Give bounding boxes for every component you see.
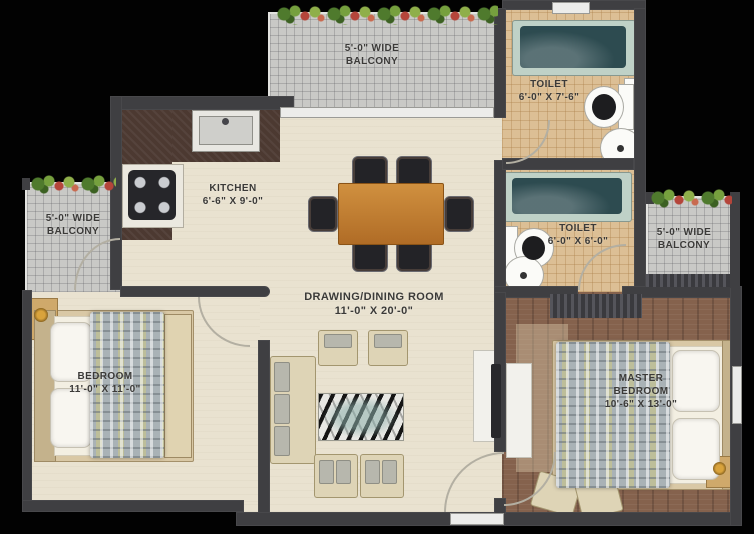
balcony-sliding-door — [280, 107, 494, 118]
tv-unit — [506, 363, 532, 458]
sink-drain — [617, 145, 624, 152]
bedroom-label: BEDROOM11'-0" X 11'-0" — [30, 370, 180, 396]
bathtub — [512, 178, 622, 214]
loveseat-cushion — [336, 460, 351, 484]
toilet-top-label: TOILET6'-0" X 7'-6" — [499, 78, 599, 104]
wall — [22, 500, 244, 512]
kitchen-label: KITCHEN6'-6" X 9'-0" — [163, 182, 303, 208]
wall — [22, 290, 32, 512]
plants-icon — [276, 5, 498, 25]
entry-door-gap — [450, 513, 504, 525]
faucet-icon — [222, 118, 229, 125]
toilet-top-window — [552, 2, 590, 14]
loveseat-cushion — [319, 460, 334, 484]
lamp-icon — [713, 462, 726, 475]
balcony-right-label: 5'-0" WIDEBALCONY — [638, 226, 730, 252]
sink-drain — [520, 272, 527, 279]
plants-icon — [650, 189, 732, 208]
dining-chair — [444, 196, 474, 232]
master-window — [732, 366, 742, 424]
sofa-cushion — [274, 362, 290, 392]
balcony-post — [22, 178, 30, 190]
balcony-top-label: 5'-0" WIDEBALCONY — [292, 42, 452, 68]
floor-plan: 5'-0" WIDEBALCONY TOILET6'-0" X 7'-6" KI… — [0, 0, 754, 534]
plants-icon — [30, 175, 116, 194]
master-balcony-window — [646, 274, 730, 287]
tv-icon — [491, 364, 501, 438]
dining-table — [338, 183, 444, 245]
wall — [110, 96, 294, 110]
pillow — [50, 388, 92, 448]
lamp-icon — [34, 308, 48, 322]
loveseat-cushion — [365, 460, 380, 484]
master-bed-blanket — [556, 342, 670, 488]
armchair-cushion — [324, 334, 352, 348]
wardrobe — [550, 294, 642, 318]
zebra-rug — [318, 393, 404, 441]
armchair-cushion — [374, 334, 402, 348]
background-mask — [0, 512, 236, 534]
toilet-mid-label: TOILET6'-0" X 6'-0" — [518, 222, 638, 248]
wall — [120, 286, 270, 297]
bathtub — [520, 26, 626, 68]
drawing-dining-label: DRAWING/DINING ROOM11'-0" X 20'-0" — [274, 290, 474, 319]
balcony-left-label: 5'-0" WIDEBALCONY — [25, 212, 121, 238]
loveseat-cushion — [382, 460, 397, 484]
dining-chair — [308, 196, 338, 232]
wall — [494, 160, 506, 292]
sofa-cushion — [274, 394, 290, 424]
sofa-cushion — [274, 426, 290, 456]
master-bedroom-label: MASTERBEDROOM10'-6" X 13'-0" — [566, 372, 716, 411]
wall — [258, 340, 270, 514]
